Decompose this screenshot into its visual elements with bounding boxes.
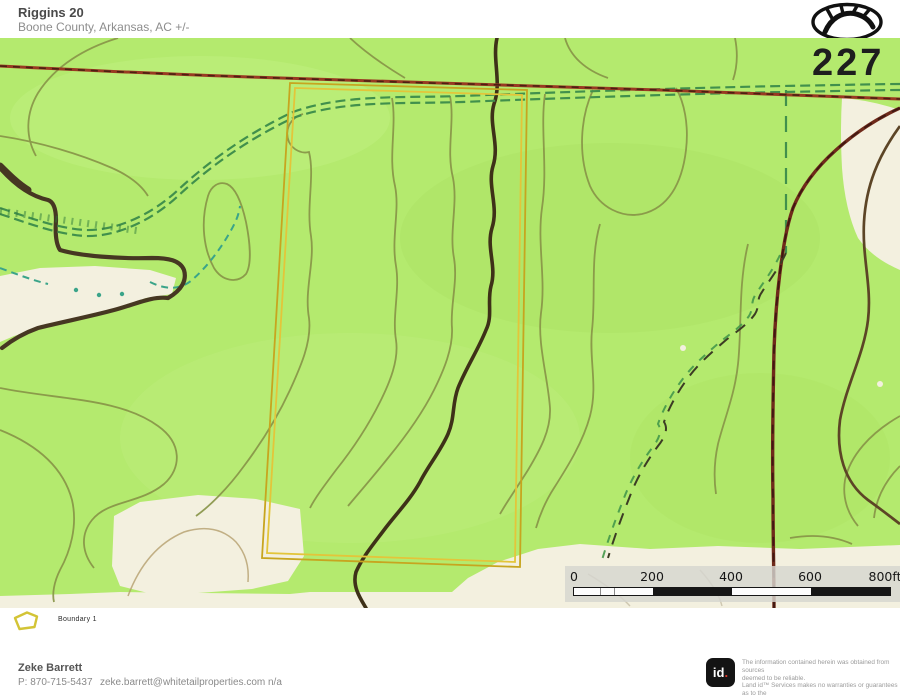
- legend: Boundary 1: [0, 608, 900, 644]
- agent-phone: P: 870-715-5437: [18, 677, 93, 688]
- page-subtitle: Boone County, Arkansas, AC +/-: [18, 20, 190, 34]
- disclaimer-line: deemed to be reliable.: [742, 675, 898, 683]
- boundary-legend-icon: [13, 611, 39, 631]
- scale-label-0: 0: [570, 569, 578, 584]
- agent-email[interactable]: zeke.barrett@whitetailproperties.com: [100, 677, 265, 688]
- disclaimer-line: Land id™ Services makes no warranties or…: [742, 682, 898, 695]
- land-id-logo-dot: .: [724, 665, 728, 680]
- scale-bar-segments: [573, 587, 891, 596]
- header: Riggins 20 Boone County, Arkansas, AC +/…: [0, 0, 900, 38]
- agent-extra: n/a: [268, 677, 282, 688]
- scale-bar: 0 200 400 600 800ft: [565, 566, 900, 602]
- topo-map-canvas: 227: [0, 38, 900, 608]
- scale-label-800ft: 800ft: [869, 569, 900, 584]
- scale-label-400: 400: [719, 569, 743, 584]
- scale-label-600: 600: [798, 569, 822, 584]
- land-id-logo: id.: [706, 658, 735, 687]
- disclaimer-text: The information contained herein was obt…: [742, 659, 898, 695]
- scale-label-200: 200: [640, 569, 664, 584]
- legend-label: Boundary 1: [58, 616, 97, 623]
- property-map-page: Riggins 20 Boone County, Arkansas, AC +/…: [0, 0, 900, 695]
- topo-map[interactable]: 227 0 200 400 600 800ft: [0, 38, 900, 608]
- page-title: Riggins 20: [18, 5, 84, 20]
- agent-name: Zeke Barrett: [18, 662, 82, 674]
- footer: Zeke Barrett P: 870-715-5437 zeke.barret…: [0, 645, 900, 695]
- whitetail-antler-logo-icon: [808, 2, 886, 42]
- road-number-label: 227: [812, 42, 884, 84]
- disclaimer-line: The information contained herein was obt…: [742, 659, 898, 675]
- land-id-logo-text: id: [713, 665, 725, 680]
